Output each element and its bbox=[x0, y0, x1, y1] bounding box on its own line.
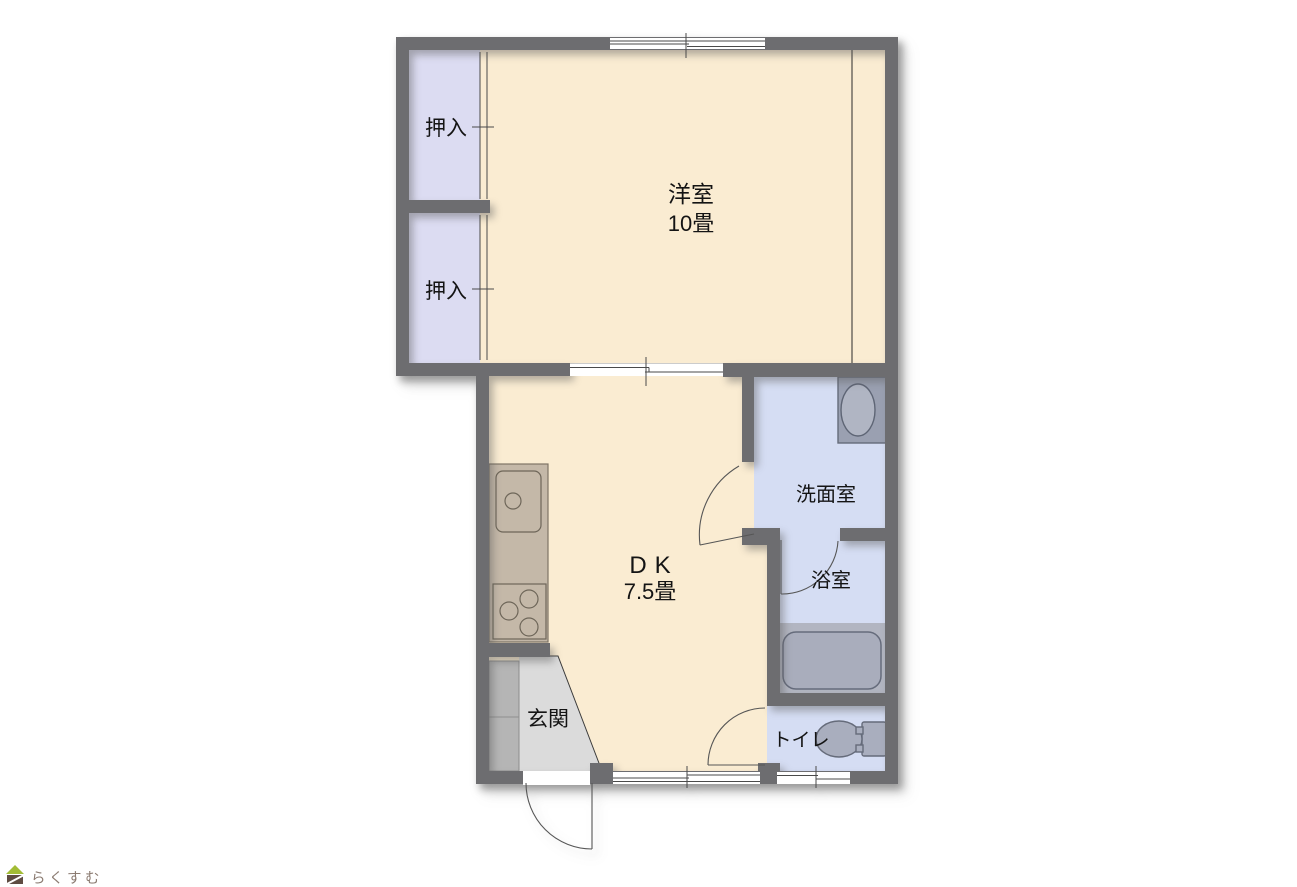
wall-closet-divider bbox=[396, 200, 490, 213]
label-bathroom: 浴室 bbox=[811, 569, 851, 592]
entrance-door bbox=[526, 783, 592, 849]
label-dk-size: 7.5畳 bbox=[624, 579, 677, 604]
label-washroom: 洗面室 bbox=[796, 483, 856, 506]
wall-toilet-pillar bbox=[758, 763, 780, 784]
floorplan-drawing: 押入 押入 洋室 10畳 DK 7.5畳 洗面室 浴室 トイレ 玄関 らくすむ bbox=[0, 0, 1297, 887]
label-closet-top: 押入 bbox=[425, 117, 467, 140]
toilet-hinge bbox=[856, 727, 863, 734]
label-western-room: 洋室 bbox=[668, 181, 714, 207]
wall-washroom-bath bbox=[840, 528, 886, 541]
label-dk: DK bbox=[629, 552, 678, 579]
wall-right bbox=[885, 37, 898, 784]
floorplan-page: 押入 押入 洋室 10畳 DK 7.5畳 洗面室 浴室 トイレ 玄関 らくすむ bbox=[0, 0, 1297, 887]
wall-mid-right bbox=[723, 363, 898, 377]
wall-bath-left bbox=[767, 540, 780, 705]
kitchen-counter bbox=[489, 464, 548, 642]
window-toilet bbox=[777, 772, 850, 784]
label-toilet: トイレ bbox=[772, 730, 829, 751]
washroom-sink-basin bbox=[841, 384, 875, 436]
brand-logo: らくすむ bbox=[6, 865, 103, 887]
wall-bath-toilet bbox=[767, 693, 898, 706]
logo-house-roof-icon bbox=[6, 865, 24, 874]
label-closet-bottom: 押入 bbox=[425, 280, 467, 303]
wall-kitchen-stub bbox=[476, 643, 550, 657]
shoe-cabinet bbox=[489, 661, 519, 771]
bathtub bbox=[783, 632, 881, 689]
logo-text: らくすむ bbox=[31, 870, 103, 887]
wall-washroom-left bbox=[742, 377, 754, 462]
floorplan: 押入 押入 洋室 10畳 DK 7.5畳 洗面室 浴室 トイレ 玄関 bbox=[396, 33, 898, 849]
label-western-room-size: 10畳 bbox=[668, 211, 714, 236]
entrance-opening bbox=[523, 771, 590, 785]
toilet-tank bbox=[862, 722, 886, 756]
label-genkan: 玄関 bbox=[527, 708, 569, 731]
toilet-hinge bbox=[856, 745, 863, 752]
wall-left-lower bbox=[476, 363, 489, 784]
wall-entrance-pillar bbox=[590, 763, 613, 784]
